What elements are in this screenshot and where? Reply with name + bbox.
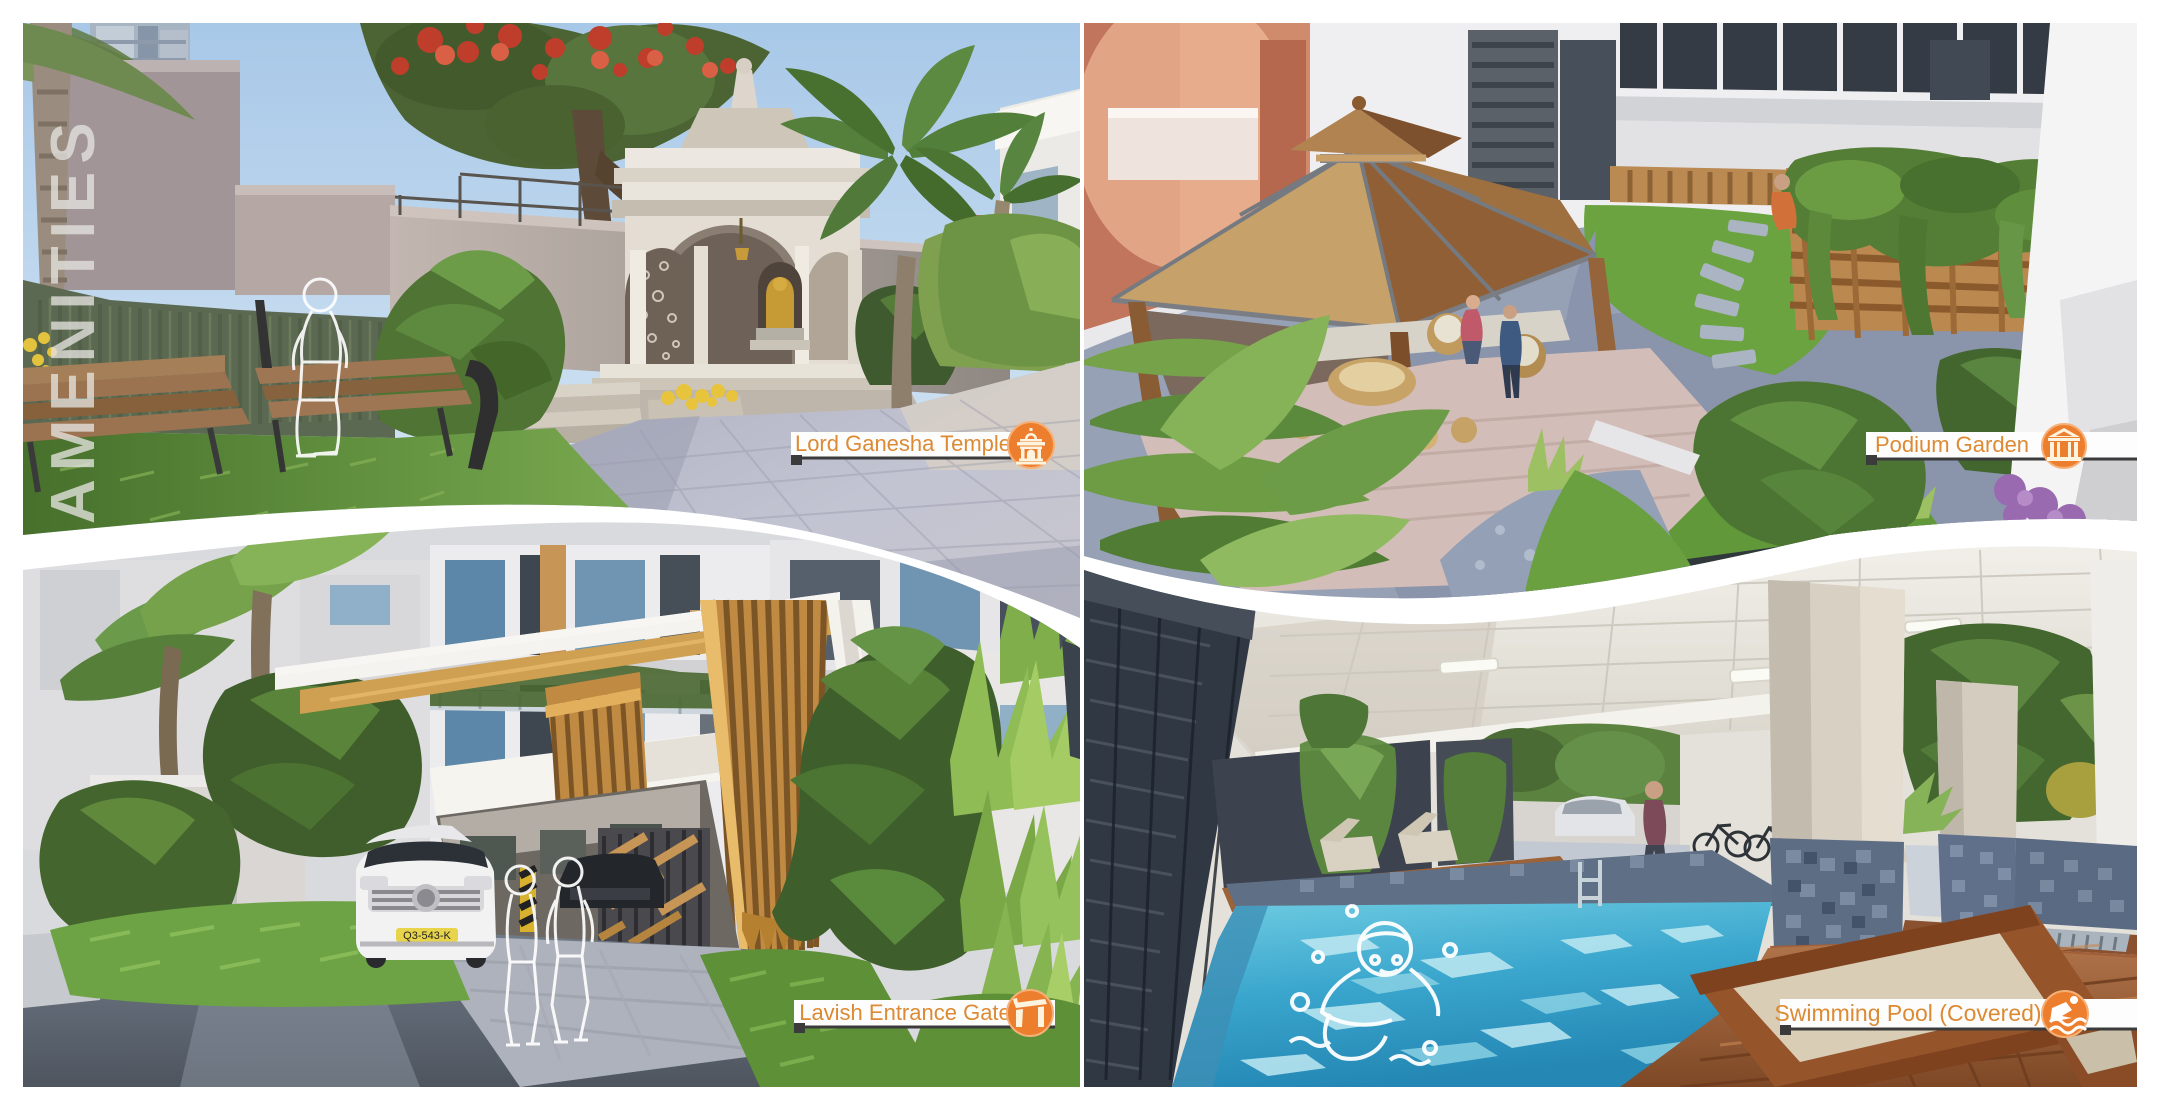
svg-text:Podium Garden: Podium Garden [1875,432,2029,457]
svg-text:Swimming Pool (Covered): Swimming Pool (Covered) [1774,1000,2041,1026]
svg-text:Lavish Entrance Gate: Lavish Entrance Gate [799,1000,1011,1025]
svg-text:Lord Ganesha Temple: Lord Ganesha Temple [795,431,1011,456]
svg-text:AMENITIES: AMENITIES [39,114,108,524]
svg-text:Q3-543-K: Q3-543-K [403,930,451,942]
